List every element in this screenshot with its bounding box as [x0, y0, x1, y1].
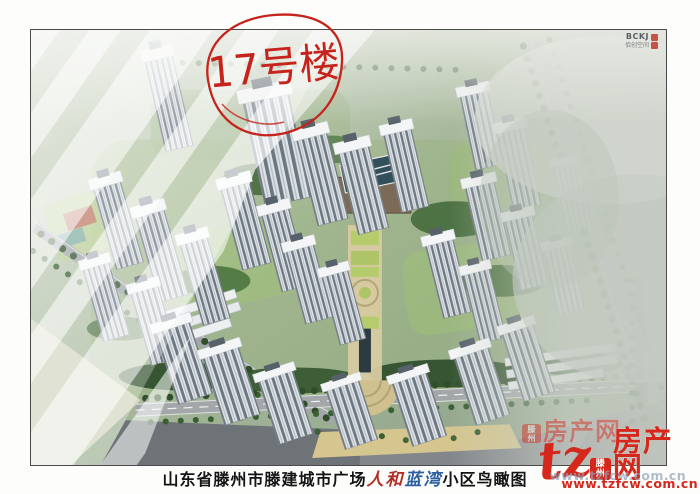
- designer-watermark: BCKJ 佰创空间: [625, 33, 658, 49]
- designer-watermark-name: 佰创空间: [625, 42, 649, 49]
- caption-suffix: 小区鸟瞰图: [443, 470, 528, 489]
- caption-brand-blue: 蓝湾: [405, 470, 443, 490]
- designer-seal-icon: [651, 34, 658, 41]
- designer-seal-icon: [651, 42, 658, 49]
- caption-brand-red: 人和: [367, 470, 405, 490]
- designer-watermark-initials: BCKJ: [626, 33, 649, 41]
- caption-prefix: 山东省滕州市滕建城市广场: [162, 470, 366, 489]
- site-watermark: 滕 州 房产网 tz 滕 州 房产网 www.tzfcw.com.cn www.…: [522, 420, 700, 490]
- watermark-url: www.tzfcw.com.cn: [561, 476, 698, 491]
- aerial-rendering-scene: [31, 30, 666, 465]
- scanned-rendering-page: BCKJ 佰创空间 17号楼 山东省滕州市滕建城市广场人和蓝湾小区鸟瞰图 滕 州…: [0, 0, 700, 494]
- photo-frame: [30, 29, 667, 466]
